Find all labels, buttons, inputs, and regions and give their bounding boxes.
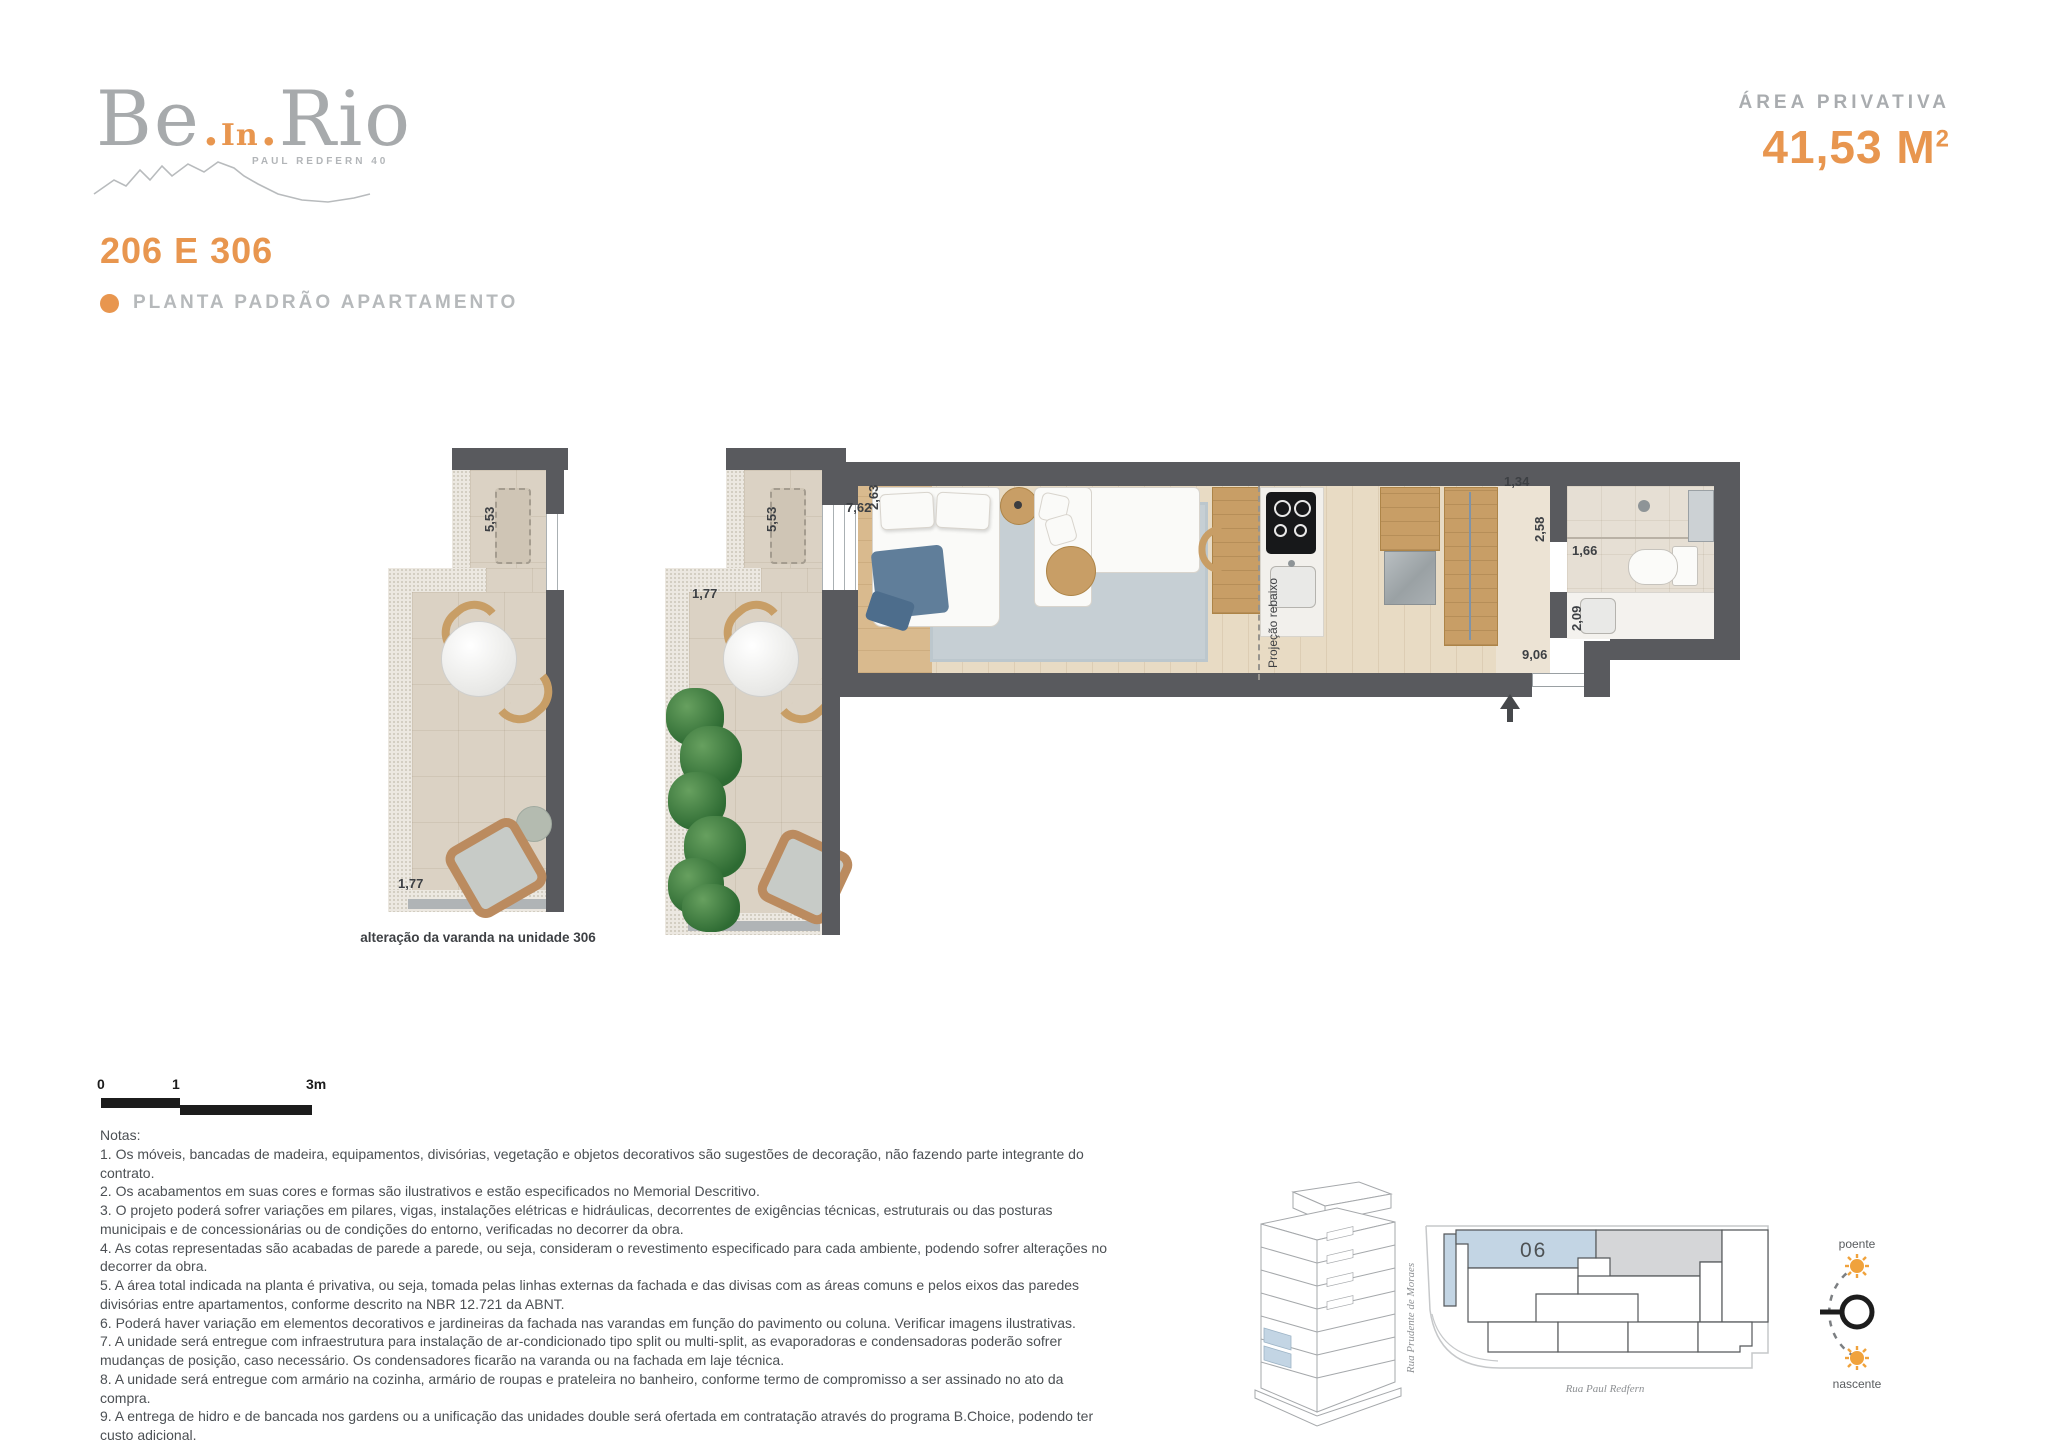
scale-segment	[101, 1098, 180, 1108]
building-axonometric	[1243, 1178, 1403, 1433]
dim-bath-length: 1,66	[1572, 543, 1597, 558]
bath-sink	[1580, 598, 1616, 634]
private-area-number: 41,53 M	[1762, 121, 1935, 173]
shower-head-icon	[1638, 500, 1650, 512]
private-area-block: ÁREA PRIVATIVA 41,53 M2	[1738, 92, 1950, 174]
wall	[1584, 641, 1610, 697]
wall-bottom	[840, 673, 1532, 697]
plan-subtitle: PLANTA PADRÃO APARTAMENTO	[133, 292, 518, 314]
hall-floor	[1496, 486, 1550, 673]
dim-balcony306-length: 5,53	[482, 507, 497, 532]
street-label-bottom: Rua Paul Redfern	[1565, 1383, 1645, 1395]
toilet-bowl	[1628, 549, 1678, 585]
coffee-table	[1046, 546, 1096, 596]
private-area-label: ÁREA PRIVATIVA	[1738, 92, 1950, 114]
planter-wall	[726, 470, 744, 568]
bath-door-gap	[1550, 542, 1567, 592]
cooktop	[1266, 492, 1316, 554]
dim-balcony-length: 5,53	[764, 507, 779, 532]
slab-projection-label: Projeção rebaixo	[1266, 578, 1280, 668]
private-area-value: 41,53 M2	[1738, 120, 1950, 174]
note-item: 5. A área total indicada na planta é pri…	[100, 1276, 1115, 1314]
brochure-page: Be . In . Rio PAUL REDFERN 40 ÁREA PRIVA…	[0, 0, 2048, 1448]
compass-west-label: poente	[1839, 1237, 1876, 1251]
note-item: 6. Poderá haver variação em elementos de…	[100, 1314, 1115, 1333]
entrance-arrow-icon	[1500, 694, 1520, 709]
north-indicator-icon	[1820, 1297, 1872, 1327]
scale-zero: 0	[97, 1076, 105, 1092]
wall	[546, 590, 564, 912]
dim-entry-length: 9,06	[1522, 647, 1547, 662]
key-plan-unit-number: 06	[1520, 1239, 1547, 1262]
notes-title: Notas:	[100, 1126, 1115, 1145]
wall-bath	[1550, 592, 1567, 638]
balcony-sliding-door	[822, 505, 858, 590]
wall-right	[1714, 462, 1740, 660]
wall-top	[840, 462, 1740, 486]
dim-hall-width: 1,34	[1504, 474, 1529, 489]
note-item: 1. Os móveis, bancadas de madeira, equip…	[100, 1145, 1115, 1183]
dim-balcony306-width: 1,77	[398, 876, 423, 891]
compass: poente nascente	[1798, 1236, 1958, 1411]
entry-threshold	[1532, 673, 1586, 687]
dim-balcony-width: 1,77	[692, 586, 717, 601]
planter-box	[495, 488, 531, 564]
planter-wall	[452, 470, 470, 568]
street-label-left: Rua Prudente de Moraes	[1405, 1263, 1417, 1374]
sun-west-icon	[1845, 1254, 1869, 1278]
variant-caption: alteração da varanda na unidade 306	[288, 930, 668, 945]
note-item: 7. A unidade será entregue com infraestr…	[100, 1332, 1115, 1370]
tall-cabinet	[1380, 487, 1440, 551]
mountain-silhouette-icon	[92, 148, 372, 210]
appliance	[1384, 551, 1436, 605]
balcony-wall-left	[388, 568, 412, 912]
dim-bedroom-width: 2,63	[866, 485, 881, 510]
slab-projection-line	[1258, 486, 1260, 680]
dim-bath-width: 2,09	[1569, 606, 1584, 631]
round-table	[723, 621, 799, 697]
pillow	[935, 492, 991, 531]
notes-block: Notas: 1. Os móveis, bancadas de madeira…	[100, 1126, 1115, 1448]
note-item: 2. Os acabamentos em suas cores e formas…	[100, 1182, 1115, 1201]
compass-east-label: nascente	[1833, 1377, 1882, 1391]
orange-dot-icon	[100, 294, 119, 313]
scale-one: 1	[172, 1076, 180, 1092]
note-item: 4. As cotas representadas são acabadas d…	[100, 1239, 1115, 1277]
wardrobe	[1444, 487, 1498, 646]
window-glass	[546, 514, 564, 590]
note-item: 3. O projeto poderá sofrer variações em …	[100, 1201, 1115, 1239]
balcony-floor	[761, 568, 822, 592]
pillow	[879, 492, 935, 531]
wall-bath	[1550, 486, 1567, 542]
balcony-floor	[486, 568, 546, 592]
dim-closet-length: 2,58	[1532, 517, 1547, 542]
site-key-plan: 06 Rua Prudente de Moraes Rua Paul Redfe…	[1400, 1218, 1795, 1413]
wall	[452, 448, 568, 470]
shower-glass	[1688, 490, 1714, 542]
plan-subtitle-row: PLANTA PADRÃO APARTAMENTO	[100, 292, 518, 314]
note-item: 9. A entrega de hidro e de bancada nos g…	[100, 1407, 1115, 1445]
wall	[546, 470, 564, 514]
note-item: 8. A unidade será entregue com armário n…	[100, 1370, 1115, 1408]
entrance-arrow-stem	[1507, 708, 1513, 722]
faucet-icon	[1288, 560, 1295, 567]
private-area-sup: 2	[1936, 126, 1950, 153]
sun-east-icon	[1845, 1346, 1869, 1370]
round-table	[441, 621, 517, 697]
lamp-icon	[1014, 501, 1022, 509]
scale-three: 3m	[306, 1076, 326, 1092]
unit-title: 206 E 306	[100, 230, 273, 272]
scale-segment	[180, 1105, 312, 1115]
